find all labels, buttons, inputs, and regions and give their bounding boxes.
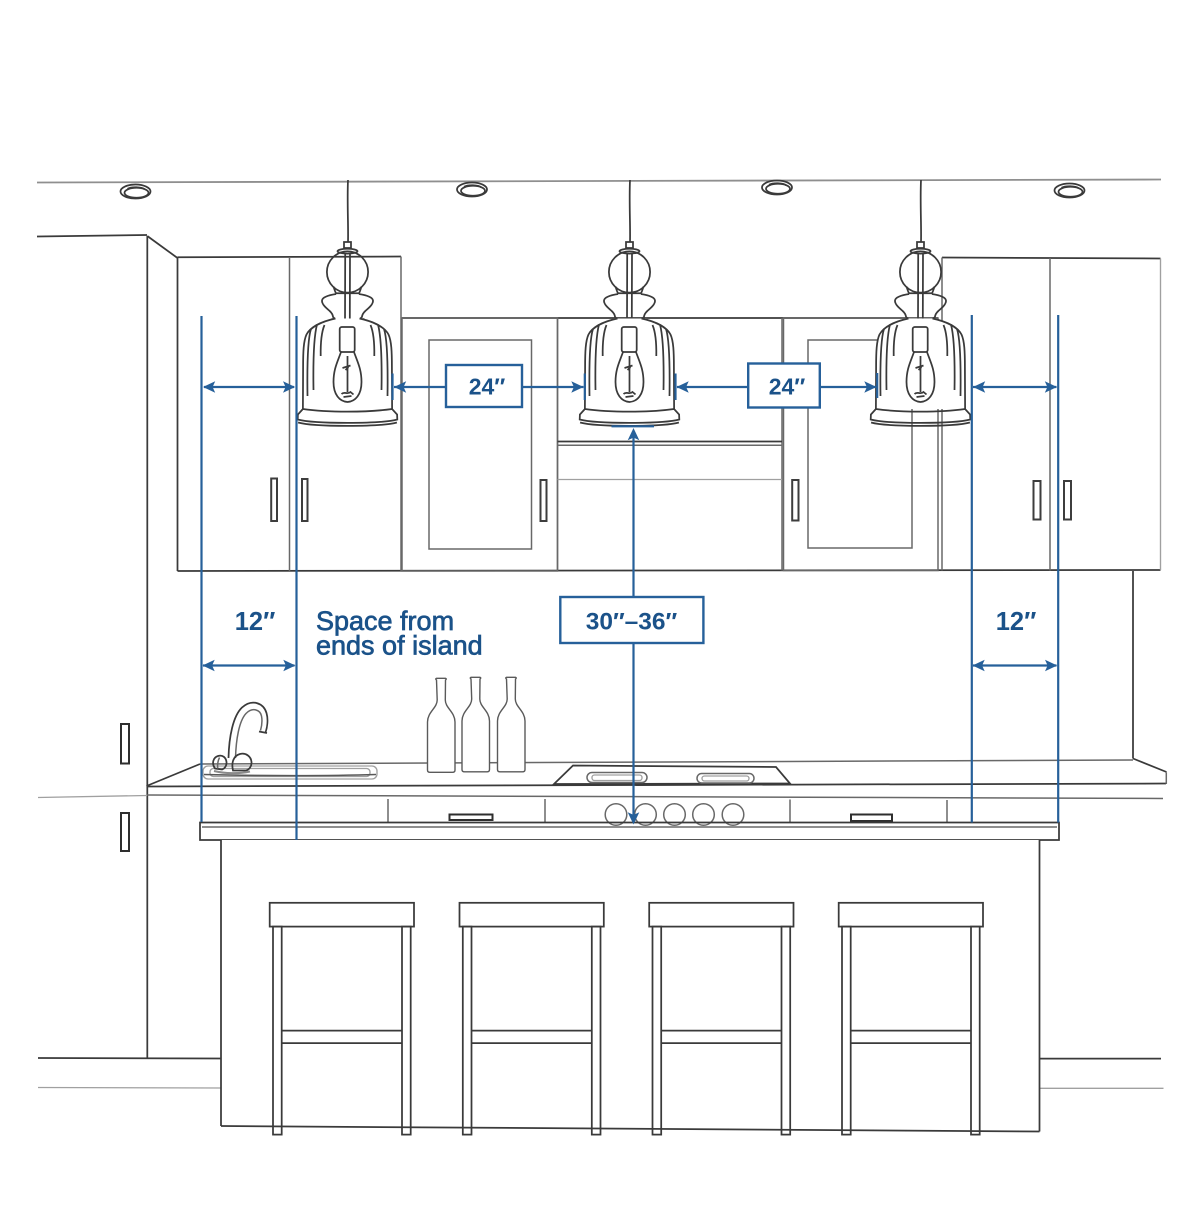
svg-text:12″: 12″ [996,608,1037,636]
svg-text:ends of island: ends of island [316,631,483,661]
svg-text:24″: 24″ [469,374,506,400]
svg-text:24″: 24″ [769,374,806,400]
svg-text:12″: 12″ [235,608,276,636]
svg-text:30″–36″: 30″–36″ [586,609,678,636]
